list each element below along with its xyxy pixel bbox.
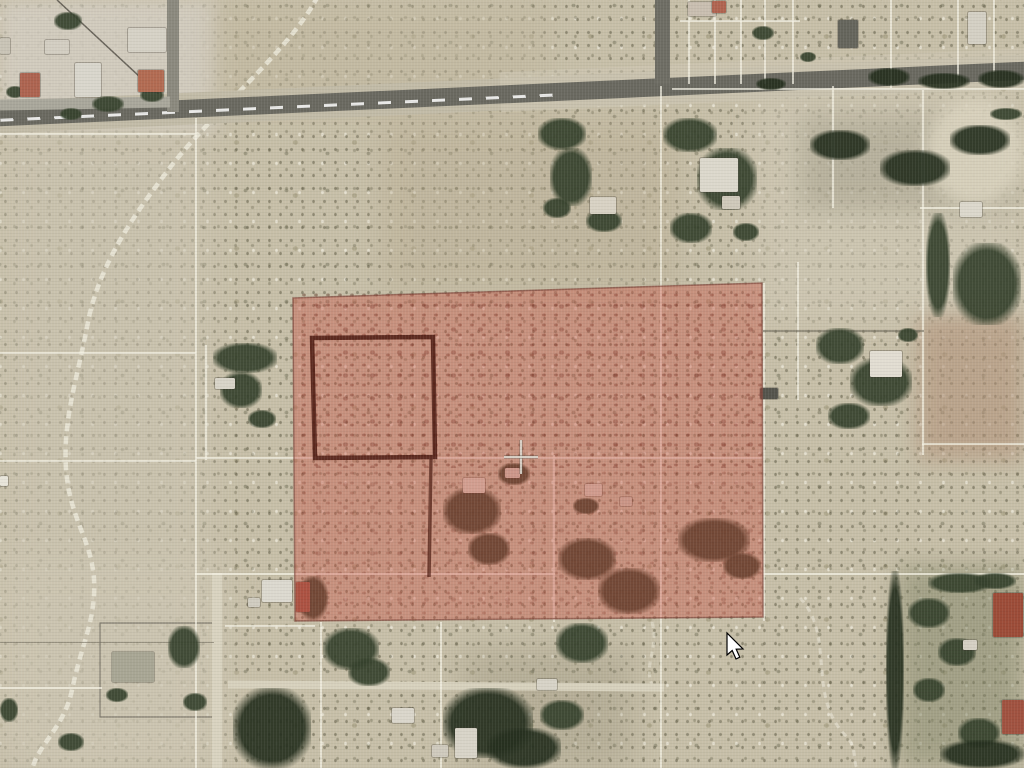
parcel-outline-bold-segment [429, 459, 431, 577]
map-viewport[interactable] [0, 0, 1024, 768]
cursor-arrow-icon [727, 633, 743, 659]
selection-layer [0, 0, 1024, 768]
selected-parcels-overlay[interactable] [293, 283, 763, 621]
mouse-cursor [727, 633, 744, 660]
